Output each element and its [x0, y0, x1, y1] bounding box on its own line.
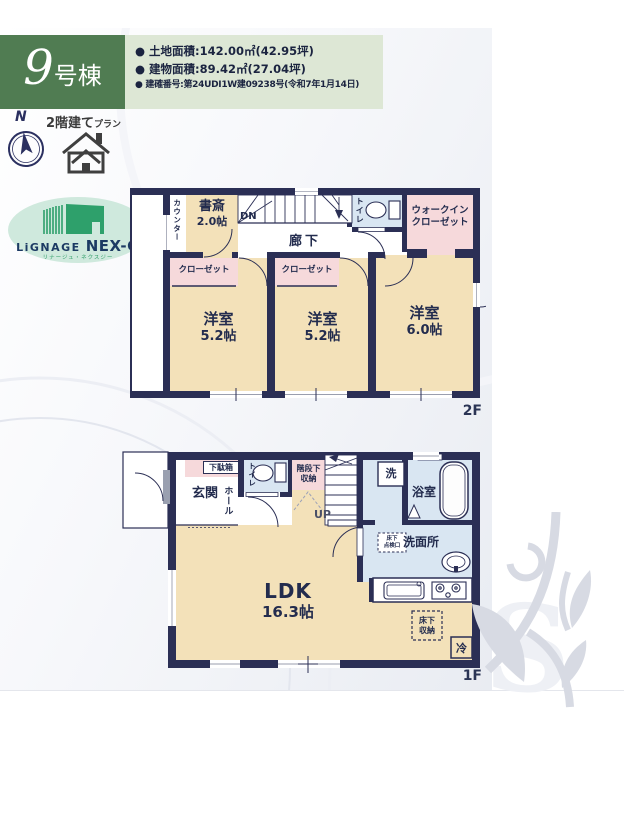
unit-number-banner: 9号棟: [0, 35, 125, 109]
property-info-box: ● 土地面積:142.00㎡(42.95坪) ● 建物面積:89.42㎡(27.…: [125, 35, 383, 109]
understair-label-line1: 階段下: [292, 464, 325, 473]
hallway-label: 廊下: [289, 235, 321, 250]
floor-plan-2f: カウンター 書斎 2.0帖 DN 廊下 トイレ ウォークイン クローゼット クロ…: [126, 183, 486, 403]
floral-flourish-decoration: [468, 512, 624, 718]
unit-number-label: 9号棟: [23, 31, 102, 113]
bedroom2-size-label: 5.2帖: [275, 330, 370, 345]
ldk-label: LDK: [238, 580, 338, 603]
stairs-dn-label: DN: [240, 211, 257, 223]
floor-storage-label-line1: 床下: [412, 616, 442, 625]
floor-2f-tag: 2F: [440, 403, 482, 419]
compass-icon: [4, 122, 50, 172]
toilet-icon-2f: [366, 201, 400, 219]
toilet-1f-label: トイレ: [247, 462, 256, 488]
toilet-2f-label: トイレ: [355, 197, 364, 224]
bedroom3-size-label: 6.0帖: [376, 324, 473, 339]
stairs-up-label: UP: [314, 509, 331, 522]
flyer-page: 9号棟 ● 土地面積:142.00㎡(42.95坪) ● 建物面積:89.42㎡…: [0, 0, 624, 832]
washer-label: 洗: [378, 468, 404, 481]
study-label: 書斎: [186, 200, 238, 215]
understair-label-line2: 収納: [292, 474, 325, 483]
kitchen-sink-icon: [384, 582, 424, 599]
building-area-text: ● 建物面積:89.42㎡(27.04坪): [135, 61, 383, 79]
bedroom2-label: 洋室: [275, 311, 370, 328]
floor-plan-1f-drawing: [118, 448, 482, 686]
wic-label-line2: クローゼット: [407, 218, 473, 229]
bedroom1-size-label: 5.2帖: [170, 330, 267, 345]
closet2-label: クローゼット: [275, 266, 339, 276]
shoe-cabinet-label: 下駄箱: [203, 461, 239, 474]
stove-icon: [432, 582, 466, 599]
bath-label: 浴室: [408, 486, 440, 500]
house-icon: [60, 126, 112, 178]
entrance-door-slab: [163, 470, 170, 504]
closet1-label: クローゼット: [170, 266, 238, 276]
floor-hatch-label-line2: 点検口: [378, 543, 406, 549]
counter-label: カウンター: [172, 199, 181, 242]
floor-hatch-label-line1: 床下: [378, 536, 406, 542]
land-area-text: ● 土地面積:142.00㎡(42.95坪): [135, 43, 383, 61]
floor-storage-label-line2: 収納: [412, 626, 442, 635]
floor-plan-1f: 玄関 ホール 下駄箱 トイレ 階段下 収納 UP 洗 浴室 洗面所 床下 点検口…: [118, 448, 482, 686]
ldk-size-label: 16.3帖: [238, 604, 338, 621]
permit-number-text: ● 建確番号:第24UDI1W建09238号(令和7年1月14日): [135, 79, 383, 93]
bedroom1-label: 洋室: [170, 311, 267, 328]
bedroom3-label: 洋室: [376, 305, 473, 322]
hall-label: ホール: [222, 486, 232, 516]
study-size-label: 2.0帖: [186, 216, 238, 229]
kitchen-counter: [373, 578, 472, 602]
wic-label-line1: ウォークイン: [407, 206, 473, 217]
washbasin-icon: [442, 552, 470, 572]
